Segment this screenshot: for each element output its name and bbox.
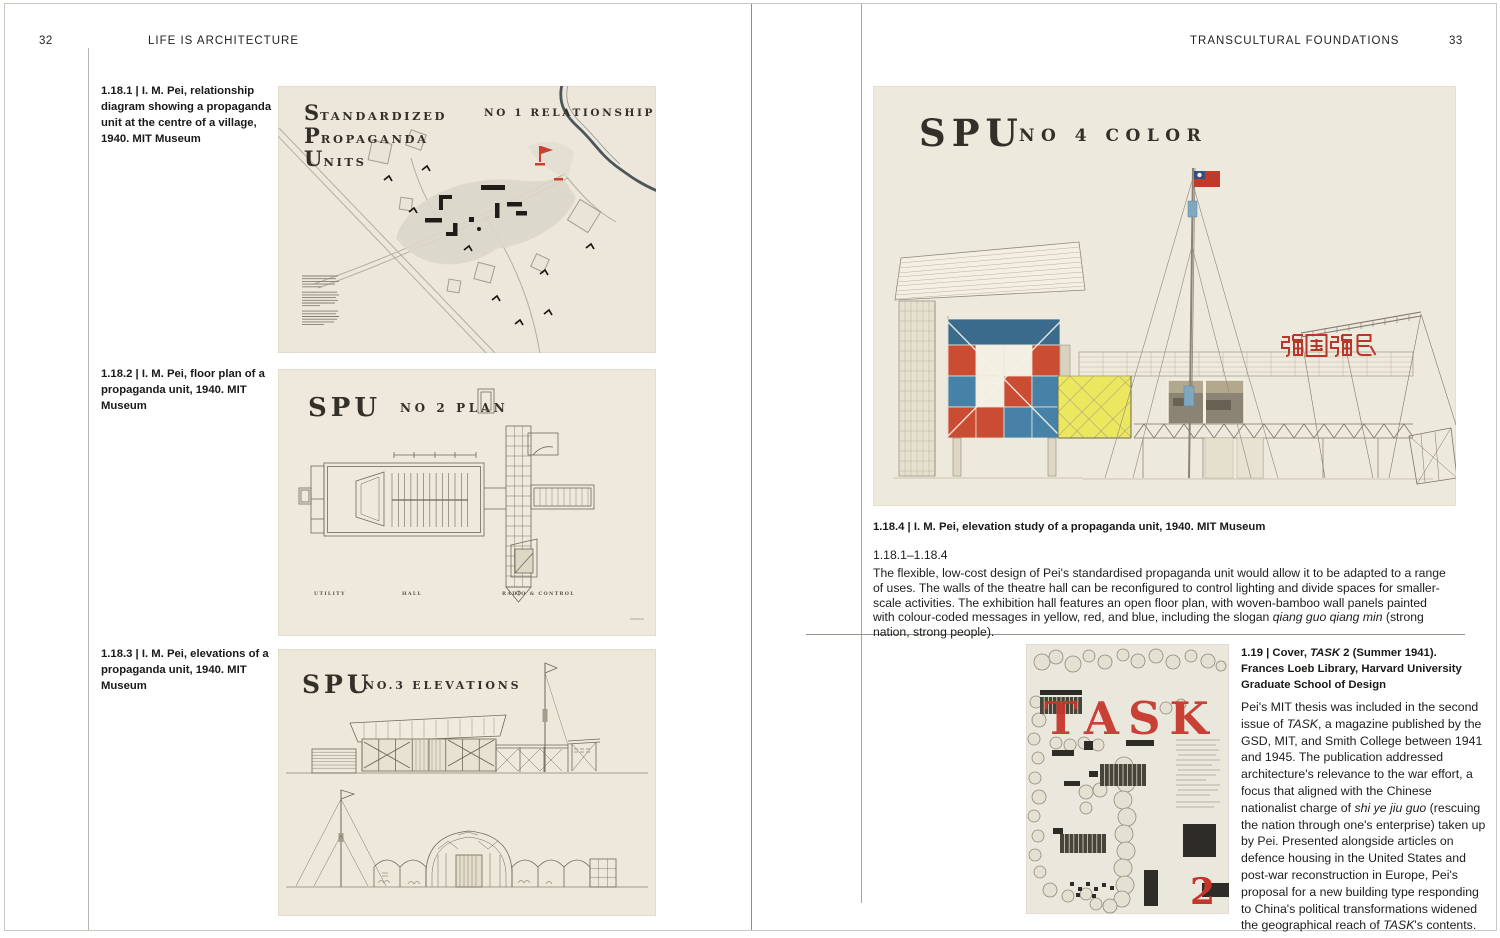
label-hall: HALL (402, 591, 422, 597)
section-paragraph: The flexible, low-cost design of Pei's s… (873, 566, 1451, 640)
task-paragraph: Pei's MIT thesis was included in the sec… (1241, 699, 1487, 934)
label-utility: UTILITY (314, 591, 346, 597)
caption-1-18-3: 1.18.3 | I. M. Pei, elevations of a prop… (101, 646, 281, 694)
caption-1-19: 1.19 | Cover, TASK 2 (Summer 1941). Fran… (1241, 645, 1481, 693)
left-running-header: LIFE IS ARCHITECTURE (148, 35, 299, 47)
right-page-margin-rule (861, 4, 862, 903)
figure1-title-right: NO 1 RELATIONSHIP (484, 107, 655, 119)
figure-color-elevation: SPU NO 4 COLOR (873, 86, 1456, 506)
figure3-title: SPU (302, 670, 373, 699)
task-issue-number: 2 (1190, 871, 1215, 913)
label-radio-control: RADIO & CONTROL (502, 591, 575, 597)
right-running-header: TRANSCULTURAL FOUNDATIONS (1190, 35, 1399, 47)
figure-relationship-diagram: STANDARDIZED PROPAGANDA UNITS NO 1 RELAT… (278, 86, 656, 353)
figure2-title: SPU (308, 393, 381, 423)
caption-1-18-4: 1.18.4 | I. M. Pei, elevation study of a… (873, 519, 1458, 535)
task-magazine-cover: TASK 2 (1026, 644, 1229, 914)
book-spread: 32 LIFE IS ARCHITECTURE 1.18.1 | I. M. P… (4, 3, 1497, 931)
section-label: 1.18.1–1.18.4 (873, 548, 948, 562)
flag-of-republic-of-china (1194, 171, 1220, 187)
figure4-subtitle: NO 4 COLOR (1019, 126, 1207, 146)
figure4-title: SPU (919, 111, 1024, 155)
book-spread-screenshot: { "book": { "left": { "page_number": "32… (0, 0, 1500, 938)
page-gutter-line (751, 4, 752, 930)
left-page-margin-rule (88, 48, 89, 930)
left-page-number: 32 (39, 35, 53, 47)
figure-elevations: SPU NO.3 ELEVATIONS (278, 649, 656, 916)
caption-1-18-1: 1.18.1 | I. M. Pei, relationship diagram… (101, 83, 281, 147)
caption-1-18-2: 1.18.2 | I. M. Pei, floor plan of a prop… (101, 366, 281, 414)
figure-floor-plan: SPU NO 2 PLAN UTILITY HALL RADIO & CO (278, 369, 656, 636)
right-page-number: 33 (1449, 35, 1463, 47)
task-cover-title: TASK (1044, 692, 1218, 745)
figure3-subtitle: NO.3 ELEVATIONS (364, 679, 521, 692)
